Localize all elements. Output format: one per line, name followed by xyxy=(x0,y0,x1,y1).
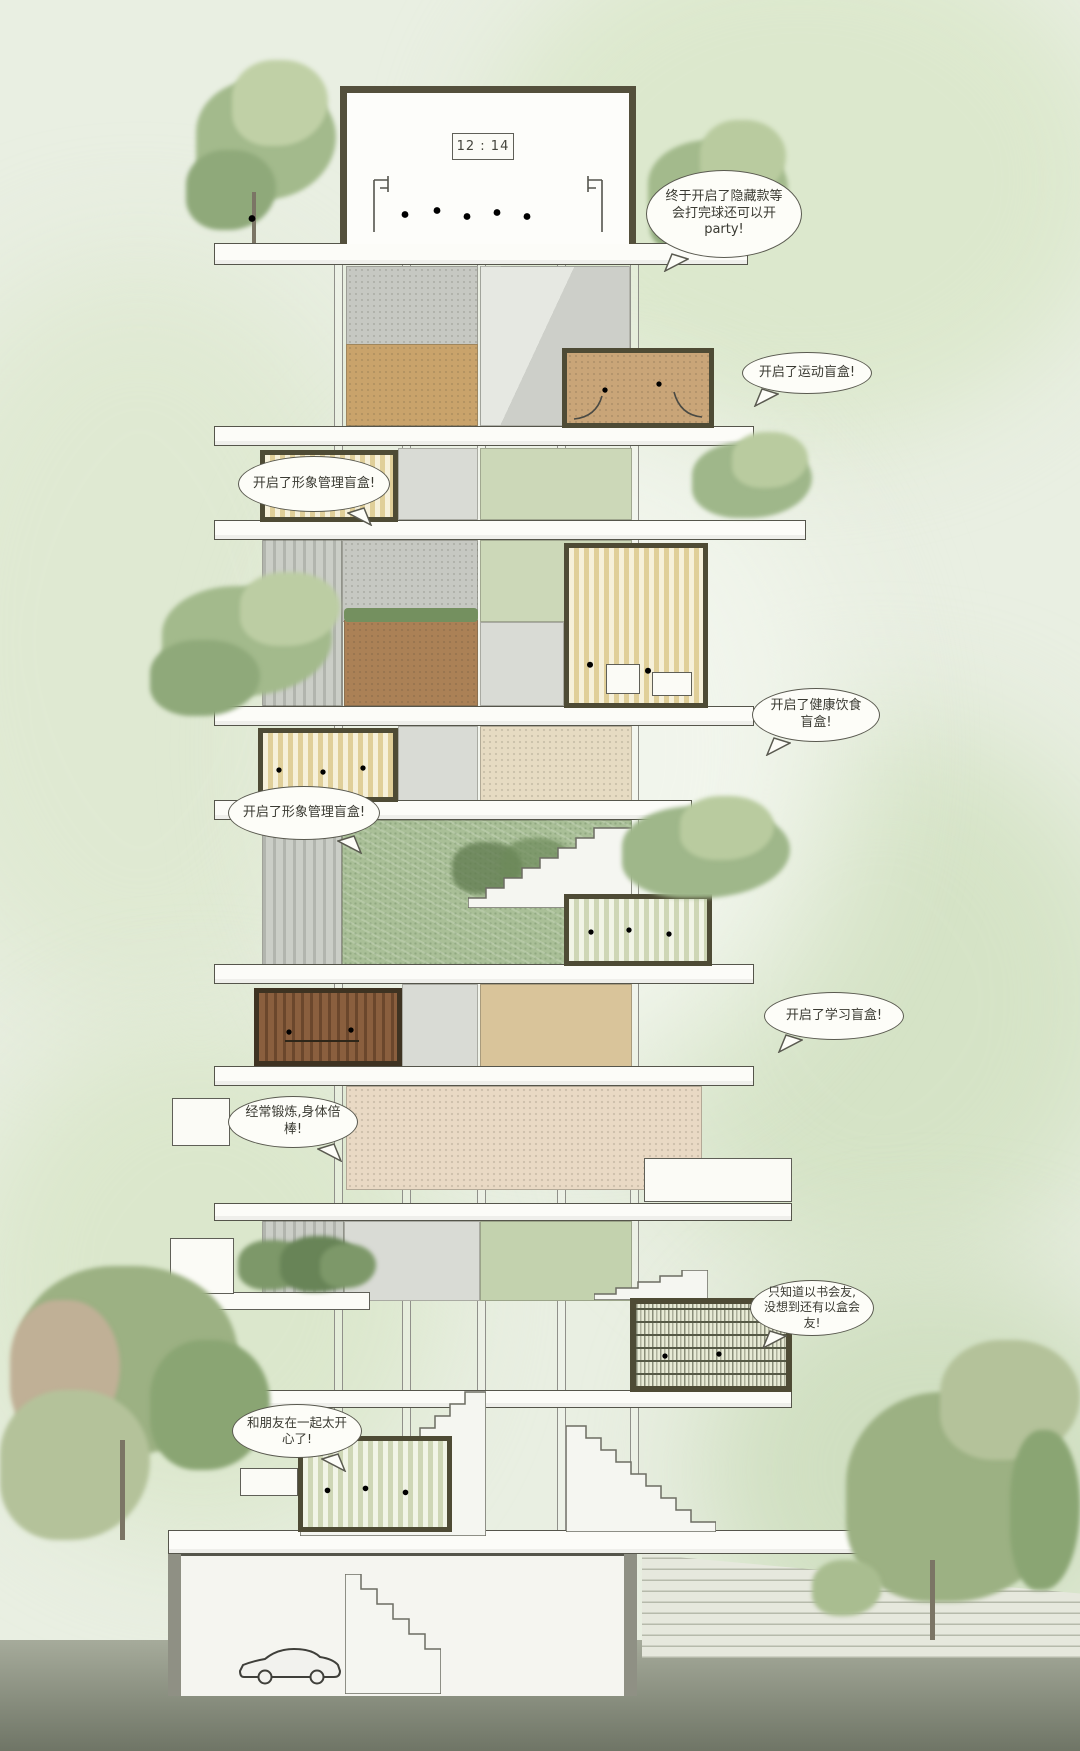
floor-slab xyxy=(214,1203,792,1221)
speech-bubble-grooming-upper: 开启了形象管理盲盒! xyxy=(238,456,390,512)
speech-bubble-text: 开启了形象管理盲盒! xyxy=(253,476,375,493)
speech-bubble-text: 开启了学习盲盒! xyxy=(786,1008,882,1025)
stick-figure xyxy=(518,212,536,244)
speech-bubble-party: 终于开启了隐藏款等会打完球还可以开party! xyxy=(646,170,802,258)
brown-panel xyxy=(344,620,478,706)
speech-bubble-friends-party: 和朋友在一起太开心了! xyxy=(232,1404,362,1458)
staircase xyxy=(594,1270,708,1300)
basement-staircase xyxy=(345,1574,441,1694)
bubble-tail-icon xyxy=(317,1142,343,1162)
stick-figure xyxy=(458,212,476,244)
kitchen-counter xyxy=(606,664,640,694)
beige-panel xyxy=(480,726,632,802)
curtain-wall-panel xyxy=(262,820,342,966)
concrete-panel xyxy=(398,726,478,802)
green-panel xyxy=(480,448,632,520)
stick-figure xyxy=(320,1486,335,1514)
floor-slab xyxy=(214,426,754,446)
stick-figure xyxy=(356,764,370,790)
tree-canopy xyxy=(186,150,276,230)
speech-bubble-text: 开启了形象管理盲盒! xyxy=(243,805,365,822)
floor-slab xyxy=(214,1066,754,1086)
scoreboard: 12 : 14 xyxy=(452,133,514,160)
basement-wall-right xyxy=(624,1554,637,1696)
stick-figure xyxy=(584,928,598,954)
speech-bubble-text: 开启了健康饮食盲盒! xyxy=(766,698,866,732)
speech-bubble-text: 终于开启了隐藏款等会打完球还可以开party! xyxy=(660,189,788,240)
bubble-tail-icon xyxy=(753,387,779,407)
stick-figure xyxy=(658,1352,672,1378)
speech-bubble-text: 经常锻炼,身体倍棒! xyxy=(242,1105,344,1139)
roof-hedge xyxy=(344,608,478,622)
architectural-section-canvas: 12 : 14 xyxy=(0,0,1080,1751)
stick-figure xyxy=(358,1484,373,1512)
stick-figure xyxy=(282,1028,296,1054)
speech-bubble-healthy-food: 开启了健康饮食盲盒! xyxy=(752,688,880,742)
speech-bubble-fitness: 经常锻炼,身体倍棒! xyxy=(228,1096,358,1148)
balcony-box xyxy=(644,1158,792,1202)
floor-slab xyxy=(214,706,754,726)
ground-plaza-slab xyxy=(168,1530,874,1554)
speech-bubble-grooming-lower: 开启了形象管理盲盒! xyxy=(228,786,380,840)
bubble-tail-icon xyxy=(347,506,373,526)
staircase-right xyxy=(566,1420,716,1532)
basement-wall-left xyxy=(168,1554,181,1696)
basketball-hoop-icon xyxy=(362,172,392,234)
stick-figure xyxy=(582,660,598,690)
scoreboard-text: 12 : 14 xyxy=(457,139,510,154)
stick-figure xyxy=(344,1026,358,1052)
floor-slab xyxy=(214,964,754,984)
stick-figure xyxy=(598,386,612,412)
rooftop-unit-box xyxy=(172,1098,230,1146)
speech-bubble-study: 开启了学习盲盒! xyxy=(764,992,904,1040)
stick-figure xyxy=(243,214,261,246)
bubble-tail-icon xyxy=(337,834,363,854)
speech-bubble-text: 和朋友在一起太开心了! xyxy=(246,1415,348,1448)
concrete-panel xyxy=(398,448,478,520)
stick-figure xyxy=(622,926,636,952)
stick-figure xyxy=(488,208,506,240)
floor-slab xyxy=(214,520,806,540)
stick-figure xyxy=(428,206,446,238)
bubble-tail-icon xyxy=(761,1329,787,1349)
bench-box xyxy=(240,1468,298,1496)
stick-figure xyxy=(398,1488,413,1516)
skate-ramp-icon xyxy=(668,388,704,420)
speech-bubble-book-friends: 只知道以书会友,没想到还有以盒会友! xyxy=(750,1280,874,1336)
stick-figure xyxy=(396,210,414,242)
stick-figure xyxy=(640,666,656,696)
speech-bubble-text: 只知道以书会友,没想到还有以盒会友! xyxy=(764,1285,860,1332)
concrete-panel xyxy=(402,984,478,1068)
tan-beige-panel xyxy=(480,984,632,1068)
car-icon xyxy=(238,1642,343,1686)
stick-figure xyxy=(712,1350,726,1376)
fitness-blindbox-room xyxy=(254,988,402,1066)
bubble-tail-icon xyxy=(777,1033,803,1053)
tan-panel xyxy=(346,344,478,426)
kitchen-counter xyxy=(652,672,692,696)
speech-bubble-text: 开启了运动盲盒! xyxy=(759,365,855,382)
speech-bubble-sports: 开启了运动盲盒! xyxy=(742,352,872,394)
tree-trunk xyxy=(120,1440,125,1540)
stick-figure xyxy=(662,930,676,956)
stick-figure xyxy=(652,380,666,406)
bubble-tail-icon xyxy=(765,736,791,756)
tree-trunk xyxy=(930,1560,935,1640)
basketball-hoop-icon xyxy=(584,172,614,234)
bubble-tail-icon xyxy=(321,1452,347,1472)
bubble-tail-icon xyxy=(663,252,689,272)
concrete-panel xyxy=(480,622,564,706)
